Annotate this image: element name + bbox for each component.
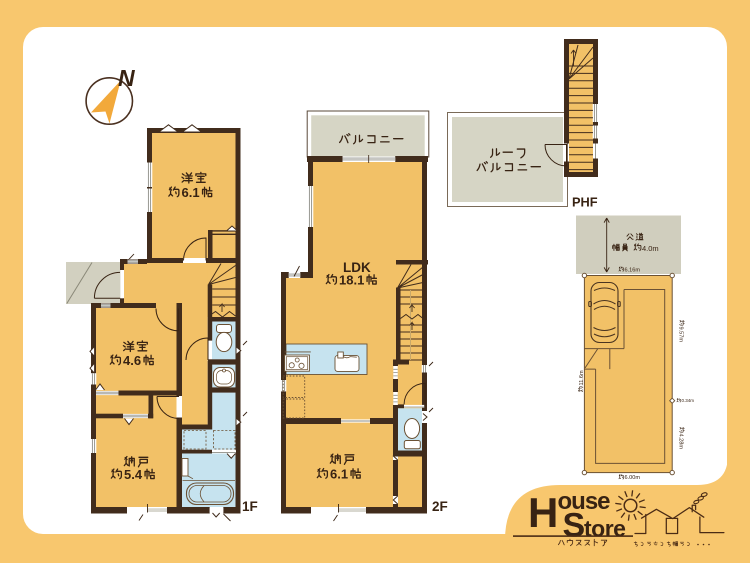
svg-text:11.6m: 11.6m xyxy=(579,370,585,385)
svg-text:tore: tore xyxy=(584,516,625,542)
svg-text:18.1: 18.1 xyxy=(339,273,364,288)
svg-text:N: N xyxy=(118,65,135,91)
svg-text:6.16m: 6.16m xyxy=(625,268,641,274)
svg-text:0.34m: 0.34m xyxy=(682,398,695,403)
svg-text:5.4: 5.4 xyxy=(124,467,143,482)
svg-text:4.28m: 4.28m xyxy=(678,434,684,450)
svg-text:4.6: 4.6 xyxy=(123,353,141,368)
svg-text:1F: 1F xyxy=(242,499,258,514)
svg-text:2F: 2F xyxy=(432,499,448,514)
svg-text:6.00m: 6.00m xyxy=(625,475,641,481)
svg-text:H: H xyxy=(528,489,558,536)
svg-text:PHF: PHF xyxy=(572,195,598,210)
svg-text:9.57m: 9.57m xyxy=(678,327,684,343)
svg-text:6.1: 6.1 xyxy=(182,185,200,200)
svg-text:6.1: 6.1 xyxy=(330,467,348,482)
svg-text:S: S xyxy=(563,507,586,545)
svg-text:4.0m: 4.0m xyxy=(642,244,659,253)
